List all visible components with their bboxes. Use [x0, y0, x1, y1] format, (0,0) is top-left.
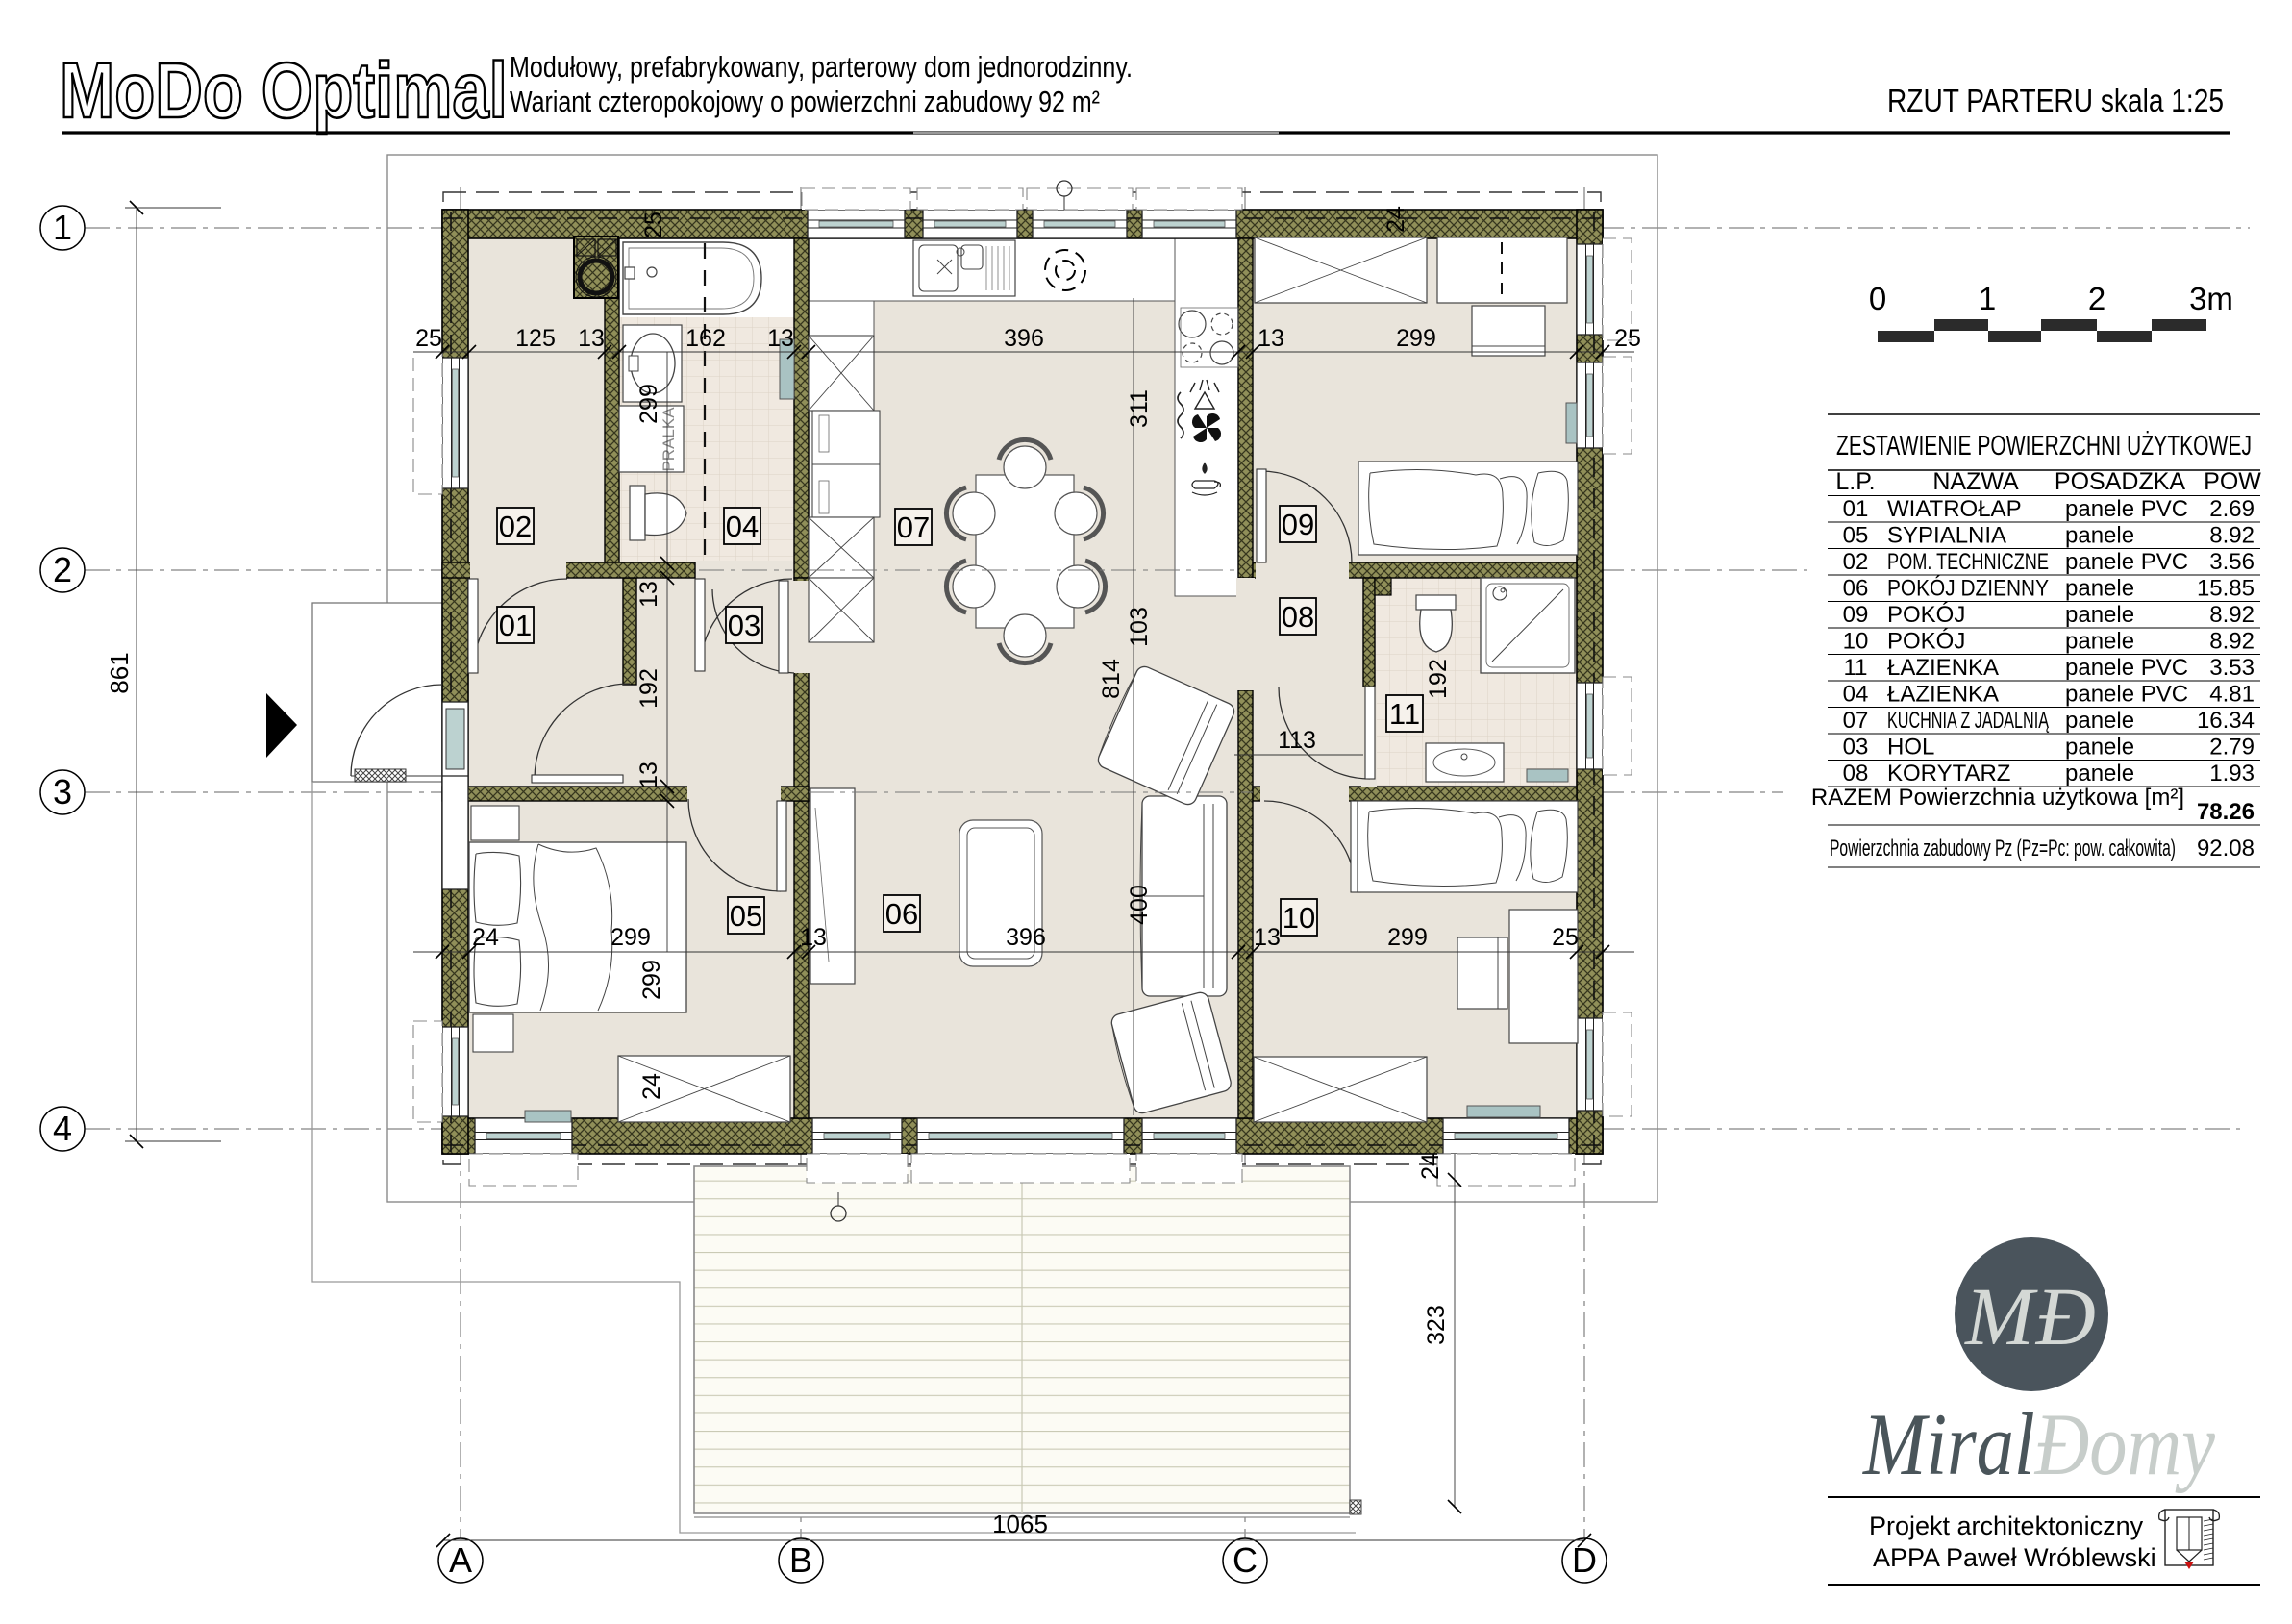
svg-text:APPA Paweł Wróblewski: APPA Paweł Wróblewski	[1873, 1543, 2156, 1572]
svg-text:panele: panele	[2065, 735, 2134, 761]
svg-text:02: 02	[499, 510, 532, 543]
svg-text:panele: panele	[2065, 523, 2134, 549]
svg-text:Modułowy, prefabrykowany, part: Modułowy, prefabrykowany, parterowy dom …	[510, 50, 1133, 84]
svg-text:panele: panele	[2065, 602, 2134, 628]
svg-text:KUCHNIA Z JADALNIĄ: KUCHNIA Z JADALNIĄ	[1887, 708, 2050, 734]
svg-text:1.93: 1.93	[2209, 761, 2255, 787]
svg-text:panele: panele	[2065, 708, 2134, 734]
svg-text:25: 25	[1552, 924, 1579, 951]
svg-text:KORYTARZ: KORYTARZ	[1887, 761, 2010, 787]
svg-text:04: 04	[1843, 682, 1869, 708]
svg-text:2.69: 2.69	[2209, 496, 2255, 522]
svg-text:396: 396	[1004, 325, 1044, 352]
svg-text:13: 13	[635, 581, 662, 608]
svg-text:08: 08	[1843, 761, 1869, 787]
svg-text:1: 1	[53, 208, 72, 247]
svg-text:0: 0	[1869, 281, 1886, 316]
svg-text:3.53: 3.53	[2209, 655, 2255, 681]
svg-text:08: 08	[1282, 600, 1314, 634]
svg-text:11: 11	[1844, 655, 1868, 681]
svg-text:24: 24	[472, 924, 499, 951]
svg-text:16.34: 16.34	[2197, 708, 2255, 734]
svg-text:3m: 3m	[2189, 281, 2233, 316]
svg-text:A: A	[449, 1540, 472, 1580]
svg-text:05: 05	[730, 899, 762, 933]
svg-text:Projekt architektoniczny: Projekt architektoniczny	[1869, 1512, 2144, 1540]
svg-text:1: 1	[1979, 281, 1996, 316]
svg-text:125: 125	[515, 325, 556, 352]
svg-text:06: 06	[1843, 576, 1869, 602]
svg-text:2: 2	[53, 550, 72, 589]
svg-text:299: 299	[635, 384, 662, 424]
svg-text:01: 01	[499, 609, 532, 642]
svg-text:Wariant czteropokojowy o powie: Wariant czteropokojowy o powierzchni zab…	[510, 85, 1100, 118]
svg-text:panele PVC: panele PVC	[2065, 655, 2188, 681]
svg-text:4.81: 4.81	[2209, 682, 2255, 708]
svg-text:113: 113	[1278, 727, 1316, 754]
svg-text:ŁAZIENKA: ŁAZIENKA	[1887, 682, 1999, 708]
svg-text:RAZEM Powierzchnia użytkowa [m: RAZEM Powierzchnia użytkowa [m²]	[1811, 785, 2184, 811]
svg-text:299: 299	[638, 960, 665, 1000]
svg-text:D: D	[1572, 1540, 1597, 1580]
svg-text:07: 07	[1843, 708, 1869, 734]
svg-text:05: 05	[1843, 523, 1869, 549]
svg-text:3: 3	[53, 772, 72, 812]
svg-text:HOL: HOL	[1887, 735, 1934, 761]
svg-text:299: 299	[1396, 325, 1436, 352]
svg-text:13: 13	[635, 762, 662, 788]
svg-text:299: 299	[1387, 924, 1428, 951]
svg-text:24: 24	[1383, 206, 1409, 233]
svg-text:06: 06	[885, 897, 918, 931]
svg-text:2: 2	[2088, 281, 2105, 316]
svg-text:10: 10	[1843, 629, 1869, 655]
svg-text:POKÓJ DZIENNY: POKÓJ DZIENNY	[1887, 576, 2049, 602]
svg-text:162: 162	[685, 325, 726, 352]
svg-text:09: 09	[1282, 508, 1314, 541]
svg-text:POKÓJ: POKÓJ	[1887, 629, 1965, 655]
svg-text:11: 11	[1389, 697, 1420, 731]
svg-text:WIATROŁAP: WIATROŁAP	[1887, 496, 2022, 522]
svg-text:POKÓJ: POKÓJ	[1887, 602, 1965, 628]
svg-text:24: 24	[1417, 1153, 1444, 1180]
svg-text:C: C	[1233, 1540, 1258, 1580]
svg-text:panele: panele	[2065, 761, 2134, 787]
svg-text:396: 396	[1006, 924, 1046, 951]
svg-text:192: 192	[635, 668, 662, 709]
svg-text:L.P.: L.P.	[1835, 468, 1875, 495]
svg-text:311: 311	[1126, 389, 1153, 428]
svg-text:1065: 1065	[992, 1510, 1048, 1538]
svg-text:Powierzchnia zabudowy Pz (Pz=P: Powierzchnia zabudowy Pz (Pz=Pc: pow. ca…	[1830, 836, 2176, 862]
svg-text:299: 299	[610, 924, 651, 951]
svg-text:09: 09	[1843, 602, 1869, 628]
svg-text:814: 814	[1098, 659, 1125, 699]
svg-text:8.92: 8.92	[2209, 523, 2255, 549]
svg-text:25: 25	[415, 325, 442, 352]
svg-text:8.92: 8.92	[2209, 629, 2255, 655]
svg-text:panele PVC: panele PVC	[2065, 549, 2188, 575]
svg-text:192: 192	[1425, 659, 1452, 699]
svg-text:78.26: 78.26	[2197, 799, 2255, 825]
svg-text:4: 4	[53, 1109, 72, 1148]
svg-text:POM. TECHNICZNE: POM. TECHNICZNE	[1887, 549, 2049, 575]
svg-text:panele: panele	[2065, 576, 2134, 602]
svg-text:07: 07	[897, 511, 930, 544]
svg-text:03: 03	[1843, 735, 1869, 761]
svg-text:103: 103	[1126, 607, 1153, 647]
svg-text:92.08: 92.08	[2197, 836, 2255, 862]
svg-text:MiralĐomy: MiralĐomy	[1861, 1395, 2215, 1493]
svg-text:03: 03	[728, 609, 760, 642]
svg-text:RZUT PARTERU skala 1:25: RZUT PARTERU skala 1:25	[1887, 83, 2224, 118]
svg-text:POW: POW	[2204, 468, 2261, 495]
svg-text:MoDo Optimal: MoDo Optimal	[60, 47, 508, 135]
svg-text:323: 323	[1423, 1305, 1450, 1345]
svg-text:861: 861	[105, 652, 134, 693]
svg-text:NAZWA: NAZWA	[1932, 468, 2019, 495]
svg-text:01: 01	[1843, 496, 1869, 522]
svg-text:13: 13	[800, 924, 827, 951]
svg-text:3.56: 3.56	[2209, 549, 2255, 575]
svg-text:02: 02	[1843, 549, 1869, 575]
svg-text:SYPIALNIA: SYPIALNIA	[1887, 523, 2006, 549]
svg-text:15.85: 15.85	[2197, 576, 2255, 602]
svg-text:13: 13	[1254, 924, 1281, 951]
svg-text:POSADZKA: POSADZKA	[2055, 468, 2185, 495]
svg-text:13: 13	[1258, 325, 1284, 352]
svg-text:24: 24	[638, 1073, 665, 1100]
svg-text:13: 13	[578, 325, 605, 352]
svg-text:B: B	[789, 1540, 812, 1580]
svg-text:panele: panele	[2065, 629, 2134, 655]
svg-text:10: 10	[1283, 901, 1315, 935]
svg-text:25: 25	[640, 212, 667, 238]
svg-text:8.92: 8.92	[2209, 602, 2255, 628]
svg-text:13: 13	[767, 325, 794, 352]
svg-text:25: 25	[1614, 325, 1641, 352]
svg-text:04: 04	[726, 510, 759, 543]
svg-text:ŁAZIENKA: ŁAZIENKA	[1887, 655, 1999, 681]
svg-text:2.79: 2.79	[2209, 735, 2255, 761]
svg-text:panele PVC: panele PVC	[2065, 682, 2188, 708]
svg-text:panele PVC: panele PVC	[2065, 496, 2188, 522]
svg-text:ZESTAWIENIE POWIERZCHNI UŻYTKO: ZESTAWIENIE POWIERZCHNI UŻYTKOWEJ	[1836, 430, 2252, 462]
svg-text:400: 400	[1126, 885, 1153, 925]
svg-text:MĐ: MĐ	[1963, 1270, 2098, 1362]
